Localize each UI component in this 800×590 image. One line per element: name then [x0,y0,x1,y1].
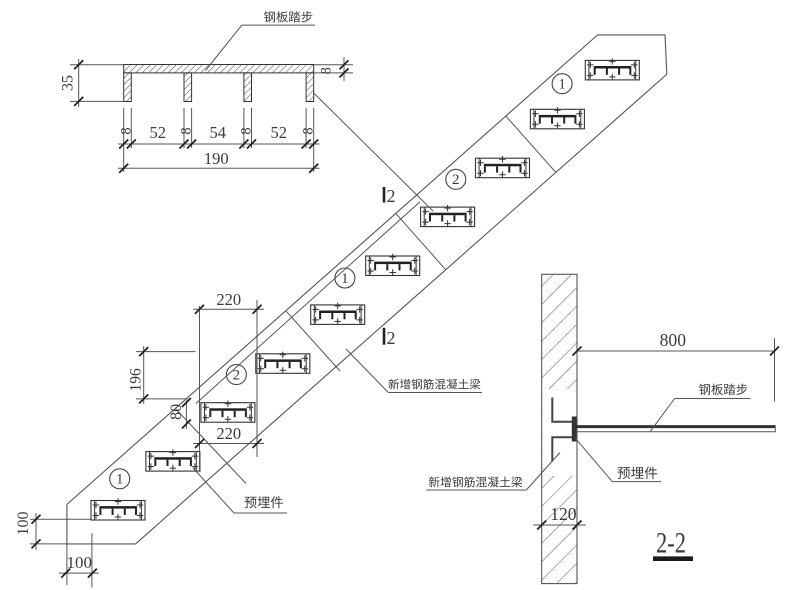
svg-text:54: 54 [210,123,227,142]
svg-text:8: 8 [239,127,255,134]
svg-text:1: 1 [341,271,349,287]
svg-text:100: 100 [15,512,32,536]
svg-text:1: 1 [558,77,566,93]
svg-text:8: 8 [118,127,134,134]
svg-text:800: 800 [660,330,687,350]
svg-text:8: 8 [179,127,195,134]
svg-text:220: 220 [216,290,241,309]
svg-text:80: 80 [168,404,185,420]
svg-text:120: 120 [550,504,577,524]
svg-text:2-2: 2-2 [656,525,686,559]
svg-text:190: 190 [204,149,229,168]
svg-text:2: 2 [387,328,396,348]
svg-text:196: 196 [128,368,145,391]
svg-text:35: 35 [60,75,77,91]
svg-text:100: 100 [67,553,93,572]
svg-text:220: 220 [216,424,241,443]
svg-text:2: 2 [233,367,241,383]
svg-text:2: 2 [387,186,396,206]
svg-text:2: 2 [452,172,460,188]
svg-text:52: 52 [271,123,288,142]
svg-text:52: 52 [149,123,166,142]
svg-text:8: 8 [301,127,317,134]
svg-text:1: 1 [116,472,124,488]
svg-text:8: 8 [318,67,334,74]
